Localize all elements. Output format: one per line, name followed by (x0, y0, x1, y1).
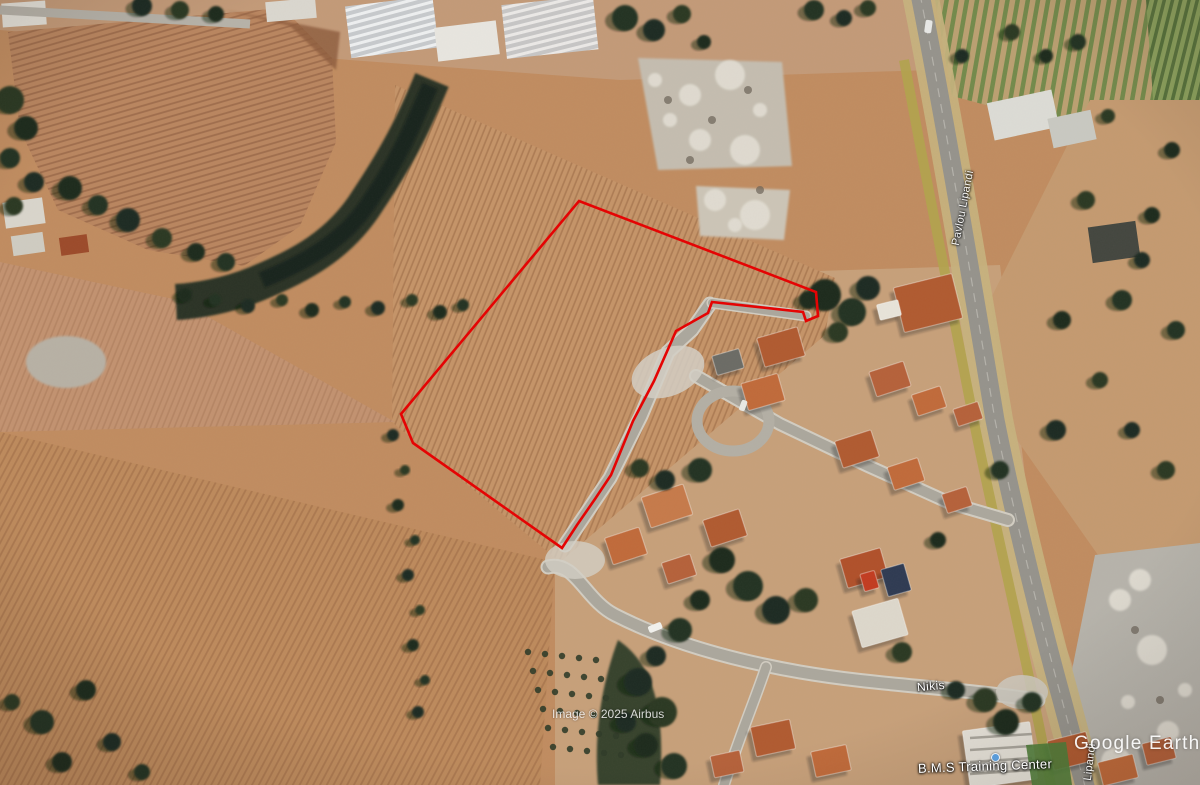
poi-marker[interactable] (991, 753, 1000, 762)
aerial-imagery (0, 0, 1200, 785)
google-earth-viewport[interactable]: Pavlou Lipandi Nikis Lipandi B.M.S Train… (0, 0, 1200, 785)
